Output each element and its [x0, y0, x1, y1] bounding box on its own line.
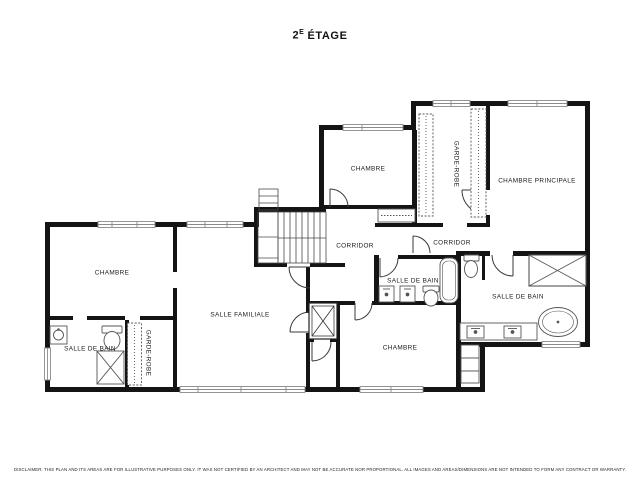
sink-icon	[400, 286, 415, 302]
floor-plan-canvas	[0, 0, 640, 480]
window	[180, 387, 305, 393]
sink-icon	[379, 286, 394, 302]
room-label-chambre-n: CHAMBRE	[351, 166, 385, 173]
floor-plan-page: 2EÉTAGE CHAMBRE SALLE DE BAIN GARDE-ROBE…	[0, 0, 640, 480]
door-corridor	[413, 236, 430, 253]
room-label-garde-robe-w: GARDE-ROBE	[145, 330, 152, 376]
door-small-room	[312, 342, 331, 361]
closet-shelves	[461, 345, 479, 383]
shower-icon	[529, 255, 586, 286]
window	[360, 387, 423, 393]
window	[508, 101, 567, 107]
door-shower-room	[290, 312, 310, 332]
door-chambre-n	[330, 189, 348, 207]
room-label-salle-familiale: SALLE FAMILIALE	[210, 312, 269, 319]
window	[433, 101, 470, 107]
bathtub-icon	[539, 308, 578, 337]
window	[187, 222, 243, 228]
room-label-corridor-east: CORRIDOR	[433, 240, 471, 247]
door-salle-de-bain-centre	[380, 258, 398, 277]
room-label-corridor-west: CORRIDOR	[336, 243, 374, 250]
vanity-double-sink	[460, 323, 537, 340]
room-label-chambre-s: CHAMBRE	[383, 345, 417, 352]
bathtub-icon	[440, 258, 458, 303]
shower-icon	[97, 351, 124, 384]
staircase	[258, 189, 326, 263]
door-salle-de-bain-est	[492, 255, 513, 276]
room-label-chambre-principale: CHAMBRE PRINCIPALE	[498, 178, 576, 185]
window	[98, 222, 155, 228]
room-label-chambre-nw: CHAMBRE	[95, 270, 129, 277]
toilet-icon	[423, 286, 439, 306]
sink-icon	[50, 326, 67, 344]
closet-shelves	[128, 323, 142, 385]
toilet-icon	[464, 255, 479, 278]
page-title: 2EÉTAGE	[0, 29, 640, 42]
shower-room-box	[309, 303, 337, 339]
room-label-salle-de-bain-centre: SALLE DE BAIN	[387, 278, 439, 285]
door-chambre-s	[355, 303, 372, 320]
room-label-salle-de-bain-w: SALLE DE BAIN	[64, 346, 116, 353]
window	[45, 348, 51, 380]
window	[542, 342, 580, 348]
closet-sliding	[378, 209, 415, 222]
floor-exponent: E	[299, 29, 304, 36]
floor-word: ÉTAGE	[307, 30, 347, 42]
window	[343, 125, 403, 131]
room-label-salle-de-bain-est: SALLE DE BAIN	[492, 294, 544, 301]
room-label-garde-robe-n: GARDE-ROBE	[453, 141, 460, 187]
disclaimer-text: DISCLAIMER: THIS PLAN AND ITS AREAS ARE …	[0, 467, 640, 472]
